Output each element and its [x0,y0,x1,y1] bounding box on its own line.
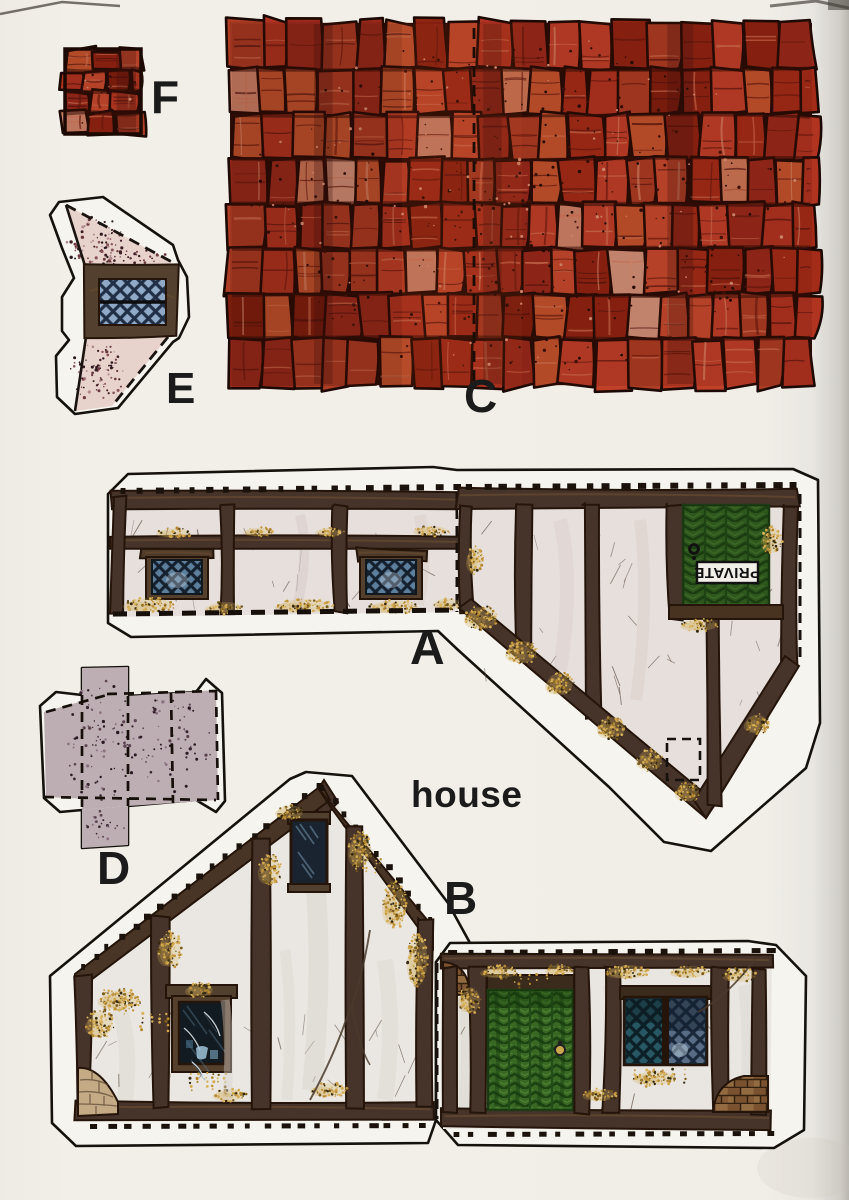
svg-text:C: C [464,370,497,422]
svg-text:D: D [97,842,130,894]
svg-text:E: E [166,364,195,413]
svg-text:A: A [410,622,445,675]
svg-text:F: F [151,71,179,123]
svg-text:house: house [411,774,522,815]
svg-text:B: B [444,872,477,924]
svg-text:PRIVATE: PRIVATE [694,564,760,581]
